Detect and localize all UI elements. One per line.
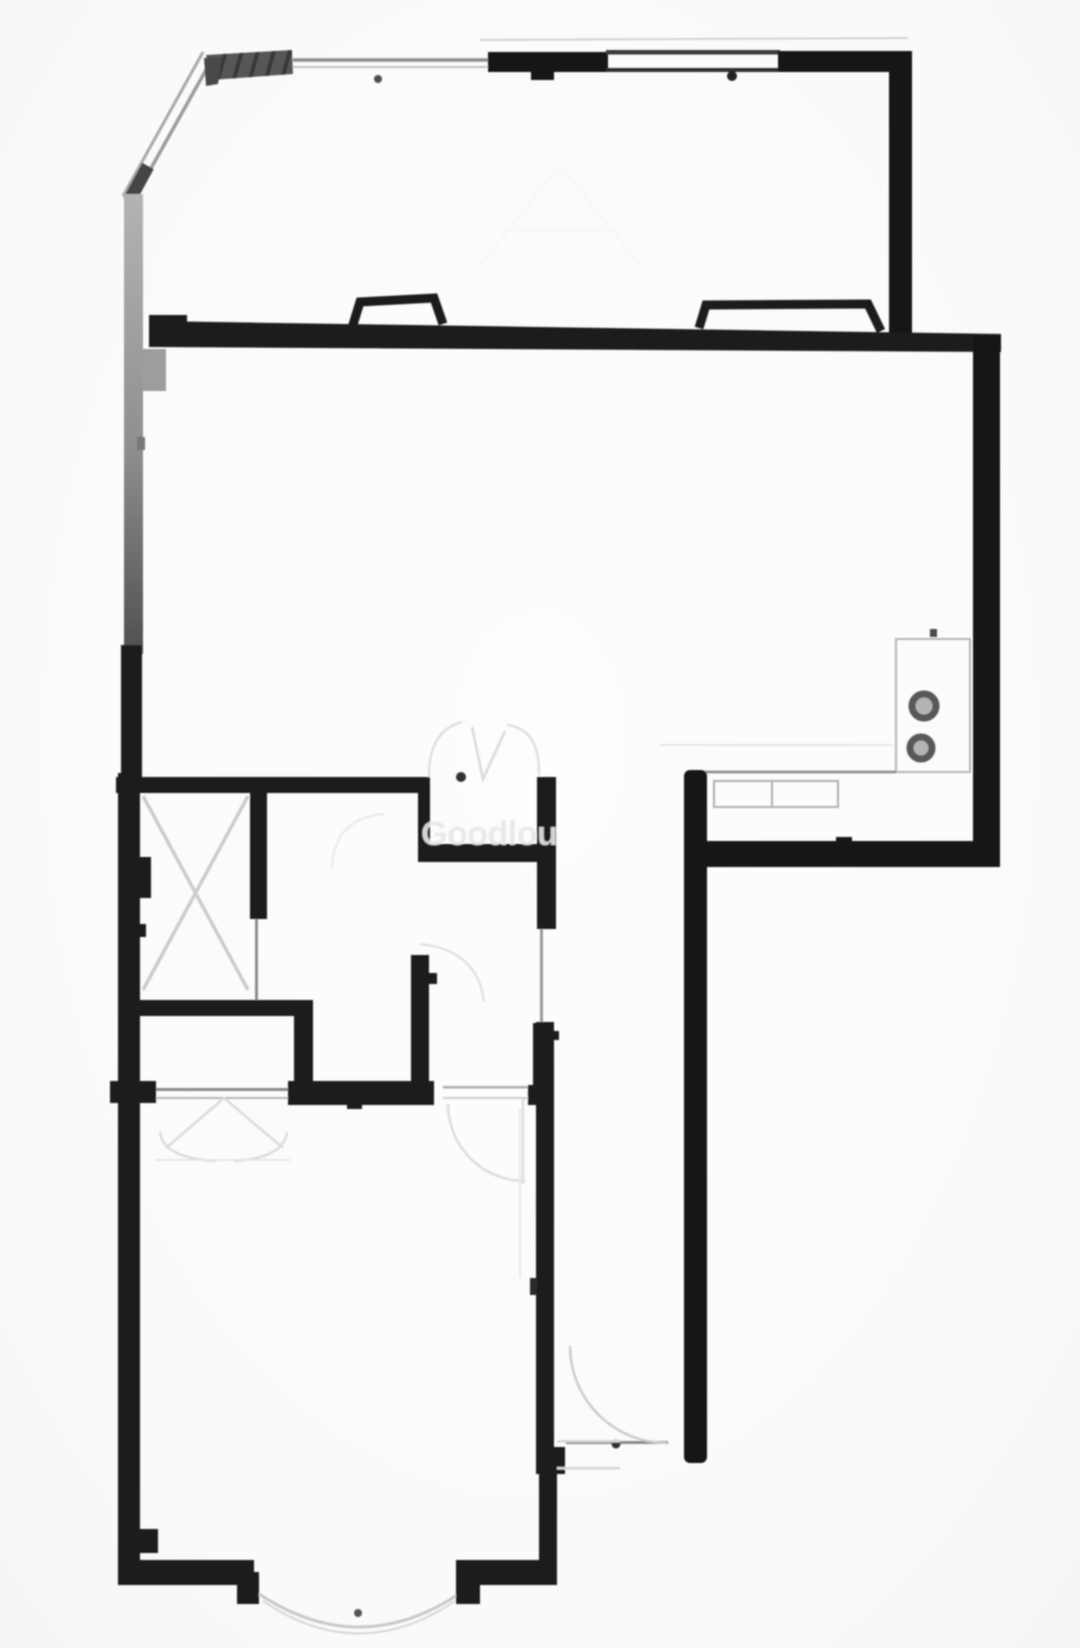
svg-text:Goodlou: Goodlou — [421, 815, 557, 853]
